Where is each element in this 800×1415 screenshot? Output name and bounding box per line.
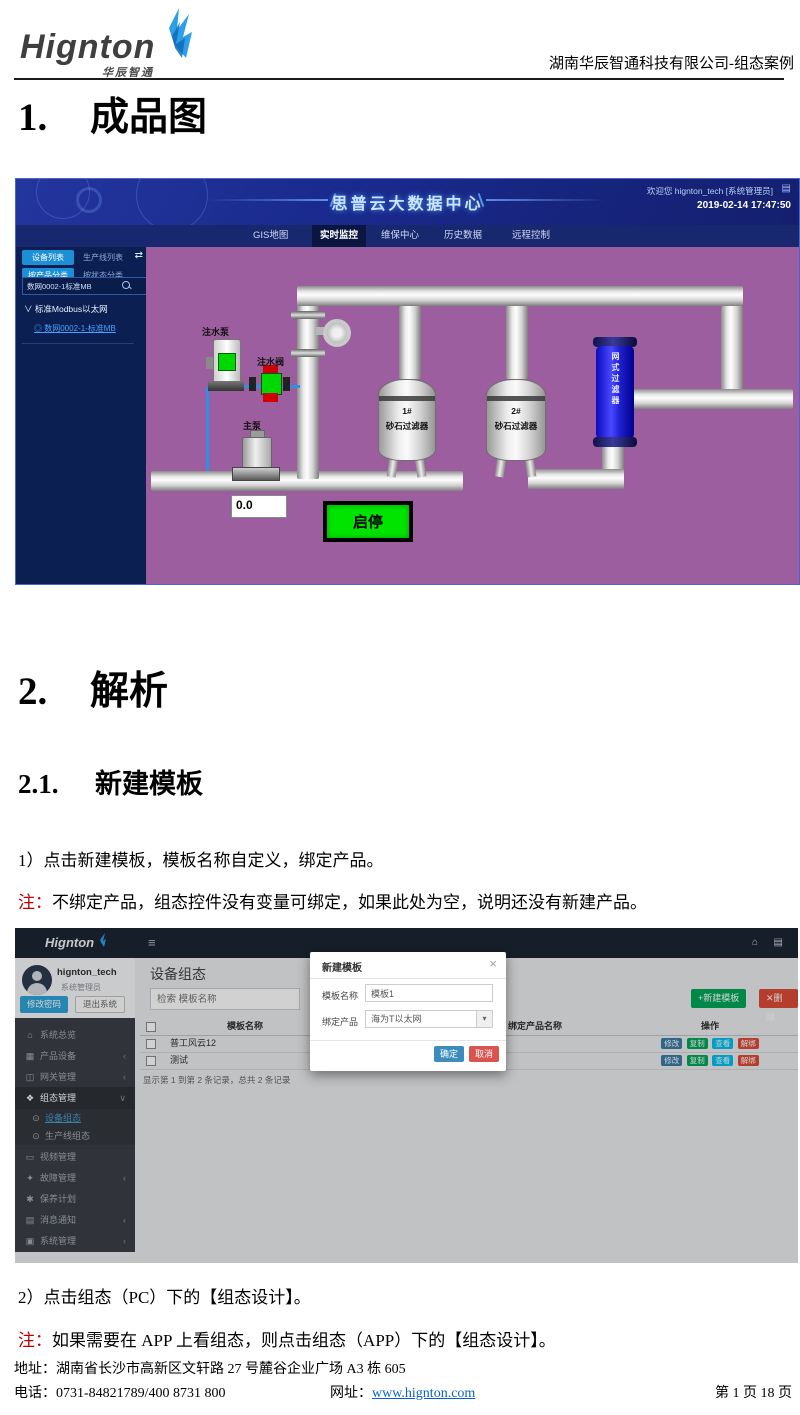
section-2-1-number: 2.1.	[18, 769, 95, 800]
admin-screenshot: Hignton ≡ ⌂ ▤ hignton_tech 系统管理员 修改密码 退出…	[15, 928, 798, 1263]
tab-realtime-monitor[interactable]: 实时监控	[312, 225, 366, 247]
scada-header-bar: 思普云大数据中心 欢迎您 hignton_tech [系统管理员] ▤ 2019…	[16, 179, 799, 225]
new-template-modal: 新建模板 × 模板名称 绑定产品 海为T以太网 ▾ 确定 取消	[310, 952, 506, 1071]
device-icon: ◎	[34, 324, 42, 333]
scada-nav-bar: GIS地图 实时监控 维保中心 历史数据 远程控制	[16, 225, 799, 248]
note-2: 注：如果需要在 APP 上看组态，则点击组态（APP）下的【组态设计】。	[18, 1326, 556, 1351]
footer-phone: 电话：0731-84821789/400 8731 800	[14, 1382, 226, 1402]
pipe-segment	[297, 286, 743, 306]
tank1-name: 砂石过滤器	[379, 420, 435, 432]
pipe-segment	[631, 389, 793, 409]
tank1-band	[379, 396, 435, 401]
device-search-input[interactable]	[22, 277, 154, 295]
company-logo: Hignton 华辰智通	[14, 6, 234, 76]
tank1[interactable]: 1# 砂石过滤器	[378, 379, 436, 461]
section-1-title: 成品图	[90, 96, 207, 139]
tab-device-list[interactable]: 设备列表	[22, 250, 74, 265]
tab-maintenance-center[interactable]: 维保中心	[381, 225, 419, 247]
pipe-segment	[399, 306, 421, 379]
sidebar-divider	[22, 343, 134, 344]
pipe-segment	[506, 306, 528, 379]
bound-product-value: 海为T以太网	[371, 1011, 422, 1027]
template-name-label: 模板名称	[322, 989, 358, 1002]
tank2-number: 2#	[487, 406, 545, 416]
tab-remote-control[interactable]: 远程控制	[512, 225, 550, 247]
valve-flange	[291, 349, 325, 357]
modal-footer-divider	[310, 1040, 506, 1041]
cancel-button[interactable]: 取消	[469, 1046, 499, 1062]
tank2-name: 砂石过滤器	[487, 420, 545, 432]
tab-history-data[interactable]: 历史数据	[444, 225, 482, 247]
note-1-tag: 注：	[18, 893, 52, 912]
section-2-1-heading: 2.1.新建模板	[18, 762, 203, 801]
injection-valve-status[interactable]	[261, 373, 282, 395]
section-1-heading: 1.成品图	[18, 86, 207, 142]
website-label: 网址：	[330, 1386, 372, 1401]
mesh-filter-label: 网式过滤器	[610, 352, 621, 407]
valve-flange	[291, 311, 325, 319]
valve-flange-left	[249, 377, 256, 391]
chevron-down-icon: ∨	[24, 304, 33, 314]
scada-screenshot: 思普云大数据中心 欢迎您 hignton_tech [系统管理员] ▤ 2019…	[15, 178, 800, 585]
section-2-heading: 2.解析	[18, 660, 168, 716]
section-1-number: 1.	[18, 95, 90, 140]
modal-title: 新建模板	[322, 959, 362, 974]
injection-pump-base	[208, 381, 244, 391]
tank2-band	[487, 396, 545, 401]
close-icon[interactable]: ×	[489, 956, 497, 971]
note-1: 注：不绑定产品，组态控件没有变量可绑定，如果此处为空，说明还没有新建产品。	[18, 888, 647, 913]
footer-website: 网址：www.hignton.com	[330, 1382, 475, 1402]
tree-leaf-device-link[interactable]: ◎ 数网0002-1-标准MB	[34, 323, 116, 334]
valve-flange-right	[283, 377, 290, 391]
main-pump-label: 主泵	[243, 419, 261, 432]
injection-pump-label: 注水泵	[202, 325, 229, 338]
search-icon[interactable]	[122, 281, 130, 289]
section-2-1-title: 新建模板	[95, 769, 203, 799]
note-1-text: 不绑定产品，组态控件没有变量可绑定，如果此处为空，说明还没有新建产品。	[52, 893, 647, 912]
section-2-title: 解析	[90, 670, 168, 713]
datetime-display: 2019-02-14 17:47:50	[697, 200, 791, 211]
flow-reading: 0.0	[231, 495, 287, 518]
tab-production-line-list[interactable]: 生产线列表	[78, 250, 128, 265]
modal-divider	[310, 978, 506, 979]
tank2[interactable]: 2# 砂石过滤器	[486, 379, 546, 461]
injection-valve-red-bottom	[263, 393, 278, 402]
section-2-number: 2.	[18, 669, 90, 714]
mesh-filter-flange-bottom	[593, 437, 637, 447]
scada-sidebar: 设备列表 生产线列表 ⇄ 按产品分类 按状态分类 ∨ 标准Modbus以太网 ◎…	[16, 247, 147, 584]
paragraph-step-1: 1）点击新建模板，模板名称自定义，绑定产品。	[18, 846, 384, 871]
pipe-segment	[721, 306, 743, 401]
bound-product-select[interactable]: 海为T以太网 ▾	[365, 1010, 493, 1028]
mesh-filter[interactable]: 网式过滤器	[596, 346, 634, 439]
confirm-button[interactable]: 确定	[434, 1046, 464, 1062]
tank1-number: 1#	[379, 406, 435, 416]
injection-valve-label: 注水阀	[257, 355, 284, 368]
start-stop-button[interactable]: 启停	[323, 501, 413, 542]
tab-gis-map[interactable]: GIS地图	[253, 225, 288, 247]
paragraph-step-2: 2）点击组态（PC）下的【组态设计】。	[18, 1283, 311, 1308]
deer-logo-icon	[152, 4, 204, 65]
manual-valve-wheel[interactable]	[323, 319, 351, 347]
note-2-text: 如果需要在 APP 上看组态，则点击组态（APP）下的【组态设计】。	[52, 1331, 556, 1350]
logo-wordmark: Hignton	[20, 28, 155, 67]
template-name-field[interactable]	[365, 984, 493, 1002]
header-rule	[14, 78, 784, 80]
main-pump-base	[232, 467, 280, 481]
website-link[interactable]: www.hignton.com	[372, 1386, 475, 1401]
dropdown-arrow-icon[interactable]: ▾	[476, 1011, 492, 1027]
note-2-tag: 注：	[18, 1331, 52, 1350]
injection-pump-status	[218, 353, 236, 371]
bound-product-label: 绑定产品	[322, 1015, 358, 1028]
footer-address: 地址：湖南省长沙市高新区文轩路 27 号麓谷企业广场 A3 栋 605	[14, 1358, 406, 1378]
welcome-user-text: 欢迎您 hignton_tech [系统管理员]	[647, 185, 773, 197]
tree-node-modbus[interactable]: ∨ 标准Modbus以太网	[24, 303, 108, 315]
menu-icon[interactable]: ▤	[782, 183, 791, 194]
document-header-text: 湖南华辰智通科技有限公司-组态案例	[549, 52, 794, 73]
pipe-segment	[528, 469, 624, 489]
swap-icon[interactable]: ⇄	[135, 250, 143, 261]
water-line	[206, 387, 209, 471]
footer-page-number: 第 1 页 18 页	[715, 1382, 792, 1402]
